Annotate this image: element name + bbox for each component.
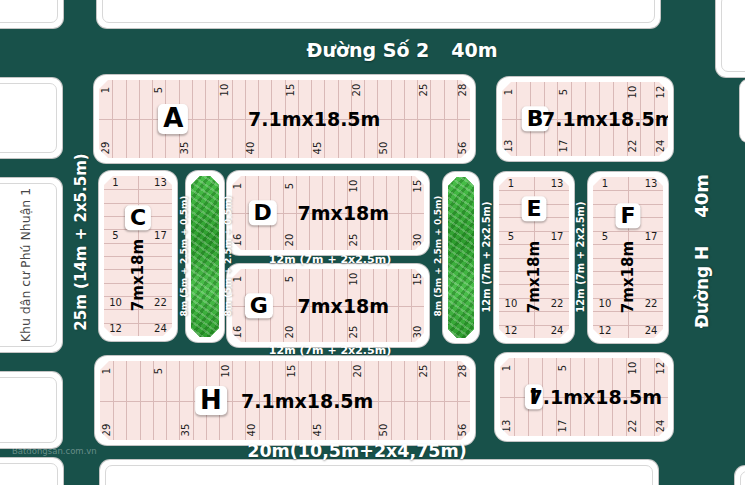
lot-number: 29: [101, 420, 113, 440]
lot-number: 40: [246, 420, 258, 440]
lot-number: 13: [641, 178, 661, 190]
block-label-H: H: [195, 386, 227, 416]
block-C: 15101213172224C7mx18m: [99, 171, 177, 341]
lot-number: 30: [412, 322, 424, 342]
lot-number: 17: [547, 231, 567, 243]
lot-number: 5: [153, 80, 165, 100]
lot-number: 1: [232, 176, 244, 196]
watermark: Batdongsan.com.vn: [12, 446, 97, 456]
block-size-C: 7mx18m: [129, 239, 147, 311]
lot-number: 15: [285, 80, 297, 100]
lot-number: 22: [547, 298, 567, 310]
block-F-area: 15101213172224F7mx18m: [593, 177, 663, 338]
block-I-area: 15101213172224I7.1mx18.5m: [500, 358, 668, 436]
block-E: 15101213172224E7mx18m: [494, 172, 574, 343]
road-width-label-8m: 8m (5m + 2.5m + 0.5m): [179, 196, 189, 317]
lot-number: 1: [106, 177, 126, 189]
lot-number: 13: [503, 136, 515, 156]
neighbor-block-bottom-left: [0, 458, 63, 485]
neighborhood-label: Khu dân cư Phú Nhuận 1: [18, 188, 33, 342]
block-B-area: 15101213172224B7.1mx18.5m: [502, 82, 668, 156]
neighbor-block-top-right: [716, 0, 745, 77]
lot-number: 5: [284, 176, 296, 196]
lot-number: 20: [284, 322, 296, 342]
road-width-label-12m: 12m (7m + 2x2.5m): [575, 201, 586, 312]
lot-number: 13: [547, 178, 567, 190]
block-D-area: 15101516202530D7mx18m: [232, 176, 424, 250]
block-label-C: C: [125, 205, 151, 230]
lot-number: 24: [641, 325, 661, 337]
lot-number: 22: [150, 297, 170, 309]
block-E-area: 15101213172224E7mx18m: [499, 177, 569, 338]
neighbor-block-right-sliver: [740, 80, 745, 142]
lot-number: 28: [457, 80, 469, 100]
road-width-label-8m: 8m (5m + 2.5m + 0.5m): [433, 196, 443, 317]
lot-number: 10: [348, 269, 360, 289]
lot-number: 13: [501, 416, 513, 436]
lot-number: 1: [501, 178, 521, 190]
lot-number: 5: [106, 230, 126, 242]
lot-number: 1: [595, 178, 615, 190]
lot-number: 5: [284, 269, 296, 289]
road-width-label: 40m: [451, 39, 497, 61]
lot-number: 25: [418, 361, 430, 381]
lot-number: 24: [655, 416, 667, 436]
lot-number: 56: [457, 420, 469, 440]
block-size-E: 7mx18m: [525, 241, 543, 313]
lot-number: 50: [378, 420, 390, 440]
lot-number: 17: [641, 231, 661, 243]
block-H: 151015202528293540455056H7.1mx18.5m: [95, 356, 475, 445]
neighbor-block-left-3: [0, 372, 62, 448]
road-name-duong-so-2: Đường Số 2 40m: [306, 39, 497, 61]
lot-number: 25: [348, 322, 360, 342]
block-label-G: G: [245, 293, 273, 318]
green-strip-1: [186, 171, 224, 342]
lot-number: 40: [245, 138, 257, 158]
road-width-label-12m: 12m (7m + 2x2.5m): [269, 253, 391, 266]
neighbor-block-top-left: [0, 0, 63, 28]
block-label-D: D: [249, 200, 277, 225]
road-name-duong-h: Đường H 40m: [691, 174, 712, 328]
green-strip-2: [443, 172, 479, 343]
lot-number: 5: [501, 231, 521, 243]
lot-number: 20: [284, 230, 296, 250]
lot-number: 10: [219, 80, 231, 100]
neighbor-block-left-1: [0, 78, 62, 158]
neighbor-block-top: [97, 0, 660, 28]
lot-number: 15: [286, 361, 298, 381]
block-G-area: 15101516202530G7mx18m: [232, 269, 424, 342]
block-size-F: 7mx18m: [619, 241, 637, 313]
lot-number: 24: [150, 323, 170, 335]
road-width-label-25m: 25m (14m + 2x5.5m): [72, 153, 90, 330]
lot-number: 25: [418, 80, 430, 100]
lot-number: 20: [351, 80, 363, 100]
lot-number: 10: [627, 82, 639, 102]
neighbor-block-bottom: [100, 460, 658, 485]
lot-number: 10: [501, 298, 521, 310]
lot-number: 10: [348, 176, 360, 196]
block-size-I: 7.1mx18.5m: [530, 386, 662, 408]
lot-number: 13: [150, 177, 170, 189]
road-width-label-8m: 8m (5m + 2.5m + 0.5m): [223, 196, 233, 317]
lot-number: 12: [655, 82, 667, 102]
lot-number: 45: [312, 138, 324, 158]
block-label-A: A: [158, 104, 188, 134]
block-G: 15101516202530G7mx18m: [227, 264, 429, 347]
road-width-label: 40m: [691, 174, 712, 218]
block-label-E: E: [521, 197, 546, 222]
lot-number: 30: [412, 230, 424, 250]
road-name-label: Đường Số 2: [306, 39, 429, 61]
lot-number: 10: [106, 297, 126, 309]
block-size-A: 7.1mx18.5m: [248, 108, 380, 130]
lot-number: 16: [232, 230, 244, 250]
lot-number: 1: [232, 269, 244, 289]
green-strip-2-area: [448, 177, 474, 338]
lot-number: 5: [153, 361, 165, 381]
lot-number: 5: [558, 82, 570, 102]
lot-number: 22: [641, 298, 661, 310]
lot-number: 1: [101, 361, 113, 381]
lot-number: 17: [557, 416, 569, 436]
lot-number: 10: [220, 361, 232, 381]
lot-number: 10: [627, 358, 639, 378]
lot-number: 24: [655, 136, 667, 156]
lot-number: 22: [627, 416, 639, 436]
block-D: 15101516202530D7mx18m: [227, 171, 429, 255]
block-F: 15101213172224F7mx18m: [588, 172, 668, 343]
lot-number: 25: [348, 230, 360, 250]
neighbor-block-left-2: Khu dân cư Phú Nhuận 1: [0, 178, 62, 352]
road-name-label: Đường H: [692, 246, 712, 328]
lot-number: 35: [179, 138, 191, 158]
block-A-area: 151015202528293540455056A7.1mx18.5m: [99, 80, 470, 158]
lot-number: 1: [503, 82, 515, 102]
block-H-area: 151015202528293540455056H7.1mx18.5m: [100, 361, 470, 440]
block-I: 15101213172224I7.1mx18.5m: [495, 353, 673, 441]
block-size-B: 7.1mx18.5m: [542, 108, 674, 130]
green-strip-1-area: [191, 176, 219, 337]
block-A: 151015202528293540455056A7.1mx18.5m: [94, 75, 475, 163]
lot-number: 15: [412, 269, 424, 289]
lot-number: 5: [557, 358, 569, 378]
lot-number: 22: [627, 136, 639, 156]
lot-number: 35: [180, 420, 192, 440]
neighbor-block-bottom-right: [735, 466, 745, 485]
lot-number: 20: [352, 361, 364, 381]
block-size-H: 7.1mx18.5m: [241, 390, 373, 412]
block-size-D: 7mx18m: [298, 202, 390, 224]
lot-number: 17: [558, 136, 570, 156]
lot-number: 15: [412, 176, 424, 196]
road-width-label-12m: 12m (7m + 2x2.5m): [269, 344, 391, 357]
lot-number: 12: [595, 325, 615, 337]
lot-number: 45: [312, 420, 324, 440]
subdivision-site-plan: Đường Số 2 40m Đường H 40m Batdongsan.co…: [0, 0, 745, 485]
lot-number: 1: [501, 358, 513, 378]
lot-number: 28: [457, 361, 469, 381]
lot-number: 50: [378, 138, 390, 158]
lot-number: 56: [457, 138, 469, 158]
lot-number: 29: [100, 138, 112, 158]
road-width-label-12m: 12m (7m + 2x2.5m): [481, 201, 492, 312]
block-label-F: F: [615, 203, 640, 228]
block-size-G: 7mx18m: [298, 295, 390, 317]
lot-number: 24: [547, 325, 567, 337]
lot-number: 12: [655, 358, 667, 378]
lot-number: 12: [501, 325, 521, 337]
lot-number: 16: [232, 322, 244, 342]
lot-number: 17: [150, 230, 170, 242]
block-B: 15101213172224B7.1mx18.5m: [497, 77, 673, 161]
block-C-area: 15101213172224C7mx18m: [104, 176, 172, 336]
lot-number: 12: [106, 323, 126, 335]
lot-number: 1: [100, 80, 112, 100]
lot-number: 5: [595, 231, 615, 243]
lot-number: 10: [595, 298, 615, 310]
road-width-label-20m: 20m(10,5m+2x4,75m): [247, 441, 467, 461]
